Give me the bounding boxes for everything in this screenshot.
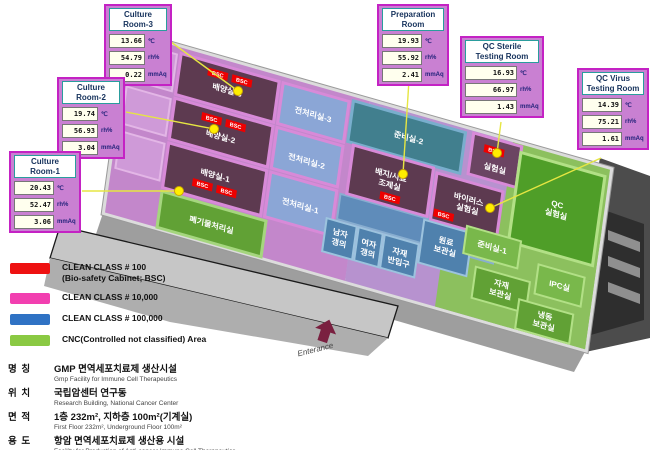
info-row-name: 명 칭 GMP 면역세포치료제 생산시설 Gmp Facility for Im…: [8, 361, 236, 383]
pressure-value: 2.41: [382, 68, 422, 82]
humidity-row: 66.97rh%: [465, 83, 539, 97]
info-value-ko: GMP 면역세포치료제 생산시설: [54, 361, 236, 375]
temperature-value: 19.93: [382, 34, 422, 48]
humidity-row: 75.21rh%: [582, 115, 644, 129]
temperature-unit: ℃: [425, 38, 444, 45]
humidity-unit: rh%: [425, 55, 444, 61]
legend-label: CNC(Controlled not classified) Area: [62, 334, 206, 345]
pressure-value: 1.61: [582, 132, 622, 146]
temperature-value: 13.66: [109, 34, 145, 48]
leader-dot: [210, 125, 219, 134]
facility-info-block: 명 칭 GMP 면역세포치료제 생산시설 Gmp Facility for Im…: [8, 361, 236, 450]
temperature-row: 20.43℃: [14, 181, 76, 195]
humidity-row: 55.92rh%: [382, 51, 444, 65]
callout-culture-room-3: Culture Room-3 13.66℃ 54.79rh% 0.22mmAq: [104, 4, 172, 86]
leader-dot: [399, 170, 408, 179]
legend-label: CLEAN CLASS # 100: [62, 262, 165, 273]
pressure-row: 3.06mmAq: [14, 215, 76, 229]
humidity-value: 55.92: [382, 51, 422, 65]
pressure-value: 3.06: [14, 215, 54, 229]
callout-culture-room-2: Culture Room-2 19.74℃ 56.93rh% 3.04mmAq: [57, 77, 125, 159]
legend-sublabel: (Bio-safety Cabinet; BSC): [62, 273, 165, 283]
temperature-value: 19.74: [62, 107, 98, 121]
info-value-en: First Floor 232m², Underground Floor 100…: [54, 424, 236, 431]
legend-swatch-green: [10, 335, 50, 346]
legend-swatch-red: [10, 263, 50, 274]
info-key: 위 치: [8, 385, 44, 407]
info-value-ko: 항암 면역세포치료제 생산용 시설: [54, 433, 236, 447]
legend-label: CLEAN CLASS # 100,000: [62, 313, 163, 324]
info-row-location: 위 치 국립암센터 연구동 Research Building, Nationa…: [8, 385, 236, 407]
info-value-ko: 국립암센터 연구동: [54, 385, 236, 399]
humidity-unit: rh%: [57, 202, 76, 208]
info-value-ko: 1층 232m², 지하층 100m²(기계실): [54, 409, 236, 423]
leader-dot: [486, 204, 495, 213]
callout-preparation-room: Preparation Room 19.93℃ 55.92rh% 2.41mmA…: [377, 4, 449, 86]
facility-floorplan-diagram: 배양실-3 전처리실-3 배양실-2 전처리실-2 배양실-1 전처리실-1: [0, 0, 650, 450]
temperature-unit: ℃: [625, 102, 644, 109]
callout-qc-virus-testing-room: QC Virus Testing Room 14.39℃ 75.21rh% 1.…: [577, 68, 649, 150]
info-row-area: 면 적 1층 232m², 지하층 100m²(기계실) First Floor…: [8, 409, 236, 431]
humidity-row: 54.79rh%: [109, 51, 167, 65]
humidity-unit: rh%: [148, 55, 167, 61]
info-value-en: Research Building, National Cancer Cente…: [54, 400, 236, 407]
callout-title: Culture Room-3: [109, 8, 167, 31]
humidity-row: 56.93rh%: [62, 124, 120, 138]
callout-qc-sterile-testing-room: QC Sterile Testing Room 16.93℃ 66.97rh% …: [460, 36, 544, 118]
callout-title: Culture Room-2: [62, 81, 120, 104]
legend-row-class-100: CLEAN CLASS # 100 (Bio-safety Cabinet; B…: [10, 262, 206, 283]
temperature-value: 20.43: [14, 181, 54, 195]
temperature-row: 16.93℃: [465, 66, 539, 80]
humidity-value: 52.47: [14, 198, 54, 212]
callout-title: QC Sterile Testing Room: [465, 40, 539, 63]
pressure-unit: mmAq: [148, 72, 167, 78]
temperature-unit: ℃: [57, 185, 76, 192]
humidity-unit: rh%: [101, 128, 120, 134]
temperature-row: 13.66℃: [109, 34, 167, 48]
humidity-value: 66.97: [465, 83, 517, 97]
temperature-unit: ℃: [101, 111, 120, 118]
humidity-unit: rh%: [625, 119, 644, 125]
pressure-unit: mmAq: [425, 72, 444, 78]
temperature-value: 14.39: [582, 98, 622, 112]
pressure-row: 2.41mmAq: [382, 68, 444, 82]
temperature-value: 16.93: [465, 66, 517, 80]
leader-dot: [493, 149, 502, 158]
info-key: 용 도: [8, 433, 44, 450]
legend-row-class-10000: CLEAN CLASS # 10,000: [10, 292, 206, 304]
info-value-en: Gmp Facility for Immune Cell Therapeutic…: [54, 376, 236, 383]
temperature-unit: ℃: [520, 70, 539, 77]
temperature-row: 19.93℃: [382, 34, 444, 48]
legend-swatch-blue: [10, 314, 50, 325]
pressure-row: 1.61mmAq: [582, 132, 644, 146]
clean-class-legend: CLEAN CLASS # 100 (Bio-safety Cabinet; B…: [10, 262, 206, 346]
pressure-unit: mmAq: [101, 145, 120, 151]
callout-title: Culture Room-1: [14, 155, 76, 178]
room-womens-changing: 여자 갱의: [354, 227, 383, 267]
pressure-value: 1.43: [465, 100, 517, 114]
callout-title: Preparation Room: [382, 8, 444, 31]
humidity-value: 56.93: [62, 124, 98, 138]
callout-culture-room-1: Culture Room-1 20.43℃ 52.47rh% 3.06mmAq: [9, 151, 81, 233]
pressure-unit: mmAq: [520, 104, 539, 110]
pressure-unit: mmAq: [625, 136, 644, 142]
legend-row-cnc: CNC(Controlled not classified) Area: [10, 334, 206, 346]
room-mens-changing: 남자 갱의: [322, 218, 357, 260]
humidity-row: 52.47rh%: [14, 198, 76, 212]
legend-swatch-pink: [10, 293, 50, 304]
pressure-unit: mmAq: [57, 219, 76, 225]
info-row-use: 용 도 항암 면역세포치료제 생산용 시설 Facility for Produ…: [8, 433, 236, 450]
humidity-value: 54.79: [109, 51, 145, 65]
temperature-unit: ℃: [148, 38, 167, 45]
humidity-value: 75.21: [582, 115, 622, 129]
info-key: 명 칭: [8, 361, 44, 383]
legend-row-class-100000: CLEAN CLASS # 100,000: [10, 313, 206, 325]
temperature-row: 19.74℃: [62, 107, 120, 121]
humidity-unit: rh%: [520, 87, 539, 93]
callout-title: QC Virus Testing Room: [582, 72, 644, 95]
pressure-row: 1.43mmAq: [465, 100, 539, 114]
leader-dot: [234, 87, 243, 96]
leader-dot: [175, 187, 184, 196]
info-key: 면 적: [8, 409, 44, 431]
legend-label: CLEAN CLASS # 10,000: [62, 292, 158, 303]
temperature-row: 14.39℃: [582, 98, 644, 112]
